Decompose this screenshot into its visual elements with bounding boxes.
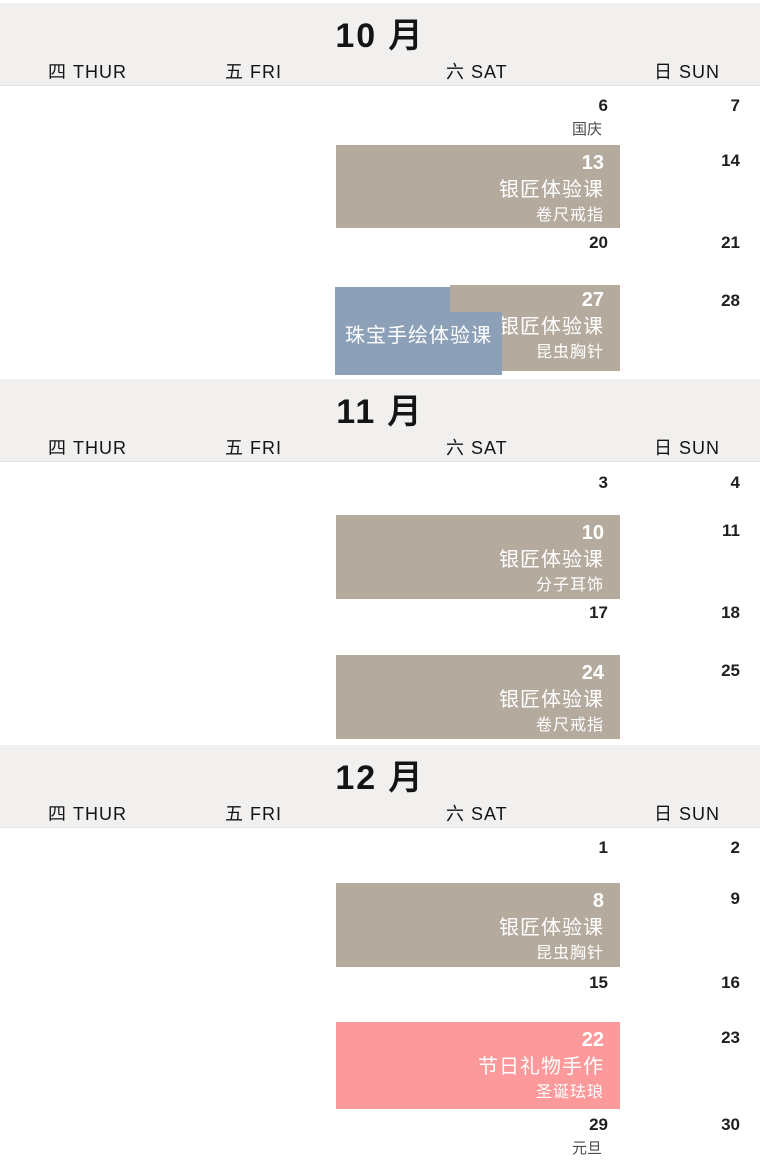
weekday-thur: 四 THUR: [48, 58, 127, 84]
date-cell-dec-29: 29: [498, 1115, 608, 1135]
weekday-thur: 四 THUR: [48, 434, 127, 460]
month-header-november: 11 月 四 THUR 五 FRI 六 SAT 日 SUN: [0, 379, 760, 462]
date-cell-dec-2: 2: [630, 838, 740, 858]
weekday-header-row: 四 THUR 五 FRI 六 SAT 日 SUN: [0, 434, 760, 458]
event-date: 22: [346, 1027, 604, 1054]
workshop-calendar: 10 月 四 THUR 五 FRI 六 SAT 日 SUN 6 7 国庆 13 …: [0, 0, 760, 1172]
event-title: 银匠体验课: [346, 547, 604, 573]
date-cell-nov-17: 17: [498, 603, 608, 623]
month-header-december: 12 月 四 THUR 五 FRI 六 SAT 日 SUN: [0, 745, 760, 828]
event-block-dec-8[interactable]: 8 银匠体验课 昆虫胸针: [336, 883, 620, 967]
event-block-nov-24[interactable]: 24 银匠体验课 卷尺戒指: [336, 655, 620, 739]
event-subtitle: 圣诞珐琅: [346, 1080, 604, 1105]
event-subtitle: 卷尺戒指: [346, 203, 604, 228]
date-cell-nov-25: 25: [630, 661, 740, 681]
date-cell-nov-4: 4: [630, 473, 740, 493]
weekday-header-row: 四 THUR 五 FRI 六 SAT 日 SUN: [0, 58, 760, 82]
date-cell-oct-21: 21: [630, 233, 740, 253]
weekday-sat: 六 SAT: [446, 800, 508, 826]
event-title: 节日礼物手作: [346, 1054, 604, 1080]
month-title-december: 12 月: [0, 750, 760, 799]
date-cell-dec-1: 1: [498, 838, 608, 858]
date-cell-oct-20: 20: [498, 233, 608, 253]
event-date: 24: [346, 660, 604, 687]
event-date: 8: [346, 888, 604, 915]
date-cell-dec-16: 16: [630, 973, 740, 993]
event-subtitle: 分子耳饰: [346, 573, 604, 598]
date-cell-nov-11: 11: [630, 521, 740, 541]
weekday-sun: 日 SUN: [654, 800, 720, 826]
event-title: 银匠体验课: [346, 687, 604, 713]
holiday-label-guoqing: 国庆: [492, 120, 602, 140]
date-cell-oct-7: 7: [630, 96, 740, 116]
date-cell-oct-6: 6: [498, 96, 608, 116]
date-cell-dec-15: 15: [498, 973, 608, 993]
date-cell-dec-9: 9: [630, 889, 740, 909]
weekday-thur: 四 THUR: [48, 800, 127, 826]
weekday-sat: 六 SAT: [446, 434, 508, 460]
event-title: 银匠体验课: [346, 915, 604, 941]
event-date: 10: [346, 520, 604, 547]
weekday-fri: 五 FRI: [225, 58, 282, 84]
date-cell-oct-14: 14: [630, 151, 740, 171]
event-subtitle: 昆虫胸针: [346, 941, 604, 966]
month-title-november: 11 月: [0, 384, 760, 433]
date-cell-nov-3: 3: [498, 473, 608, 493]
weekday-sun: 日 SUN: [654, 58, 720, 84]
event-date: 13: [346, 150, 604, 177]
weekday-header-row: 四 THUR 五 FRI 六 SAT 日 SUN: [0, 800, 760, 824]
event-title: 银匠体验课: [346, 177, 604, 203]
event-block-nov-10[interactable]: 10 银匠体验课 分子耳饰: [336, 515, 620, 599]
month-header-october: 10 月 四 THUR 五 FRI 六 SAT 日 SUN: [0, 3, 760, 86]
date-cell-dec-30: 30: [630, 1115, 740, 1135]
weekday-fri: 五 FRI: [225, 434, 282, 460]
event-title: 珠宝手绘体验课: [345, 319, 492, 348]
date-cell-nov-18: 18: [630, 603, 740, 623]
month-title-october: 10 月: [0, 8, 760, 57]
date-cell-oct-28: 28: [630, 291, 740, 311]
weekday-sat: 六 SAT: [446, 58, 508, 84]
event-block-dec-22-holiday-gift[interactable]: 22 节日礼物手作 圣诞珐琅: [336, 1022, 620, 1109]
event-subtitle: 卷尺戒指: [346, 713, 604, 738]
holiday-label-yuandan: 元旦: [492, 1139, 602, 1159]
event-block-oct-13[interactable]: 13 银匠体验课 卷尺戒指: [336, 145, 620, 228]
date-cell-dec-23: 23: [630, 1028, 740, 1048]
weekday-fri: 五 FRI: [225, 800, 282, 826]
event-date: 27: [460, 287, 604, 314]
weekday-sun: 日 SUN: [654, 434, 720, 460]
